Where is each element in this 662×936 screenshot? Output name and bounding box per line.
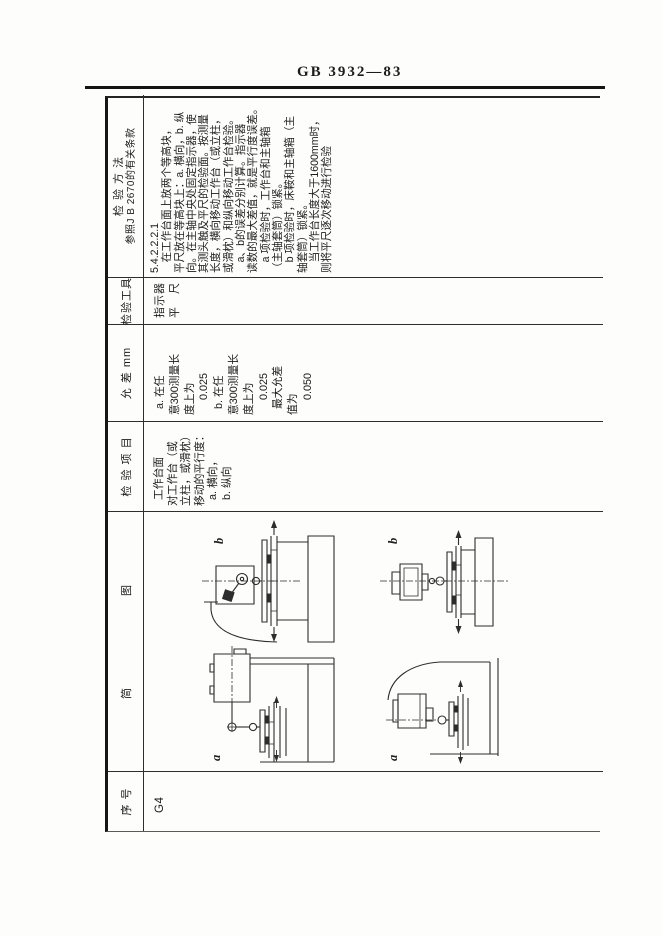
col-header-seq: 序 号 <box>108 771 144 831</box>
col-header-diagram-char1: 简 <box>118 687 134 699</box>
col-header-method-ref: 参照J B 2670的有关条款 <box>126 128 138 245</box>
diagram-label-a2: a <box>386 747 400 761</box>
col-header-tolerance: 允 差 mm <box>108 324 144 421</box>
inspection-table-grid: 序 号 简 图 检 验 项 目 允 差 mm 检验工具 检 验 方 法 参照J … <box>105 96 600 832</box>
col-header-method-title: 检 验 方 法 <box>113 156 125 216</box>
cell-seq: G4 <box>144 771 603 831</box>
scanned-standard-page: GB 3932—83 序 号 简 图 检 验 项 目 允 差 mm 检验工具 检… <box>0 0 662 936</box>
standard-number: GB 3932—83 <box>297 64 402 81</box>
col-header-diagram: 简 图 <box>108 511 144 771</box>
cell-tolerance: a. 在任 意300测量长 度上为 0.025 b. 在任 意300测量长 度上… <box>144 324 603 421</box>
inspection-table: 序 号 简 图 检 验 项 目 允 差 mm 检验工具 检 验 方 法 参照J … <box>105 96 600 832</box>
cell-method: 5.4.2.2.2.1 在工作台面上放两个等高块， 平尺放在等高块上：a. 横向… <box>144 95 603 277</box>
cell-item: 工作台面 对工作台（或 立柱，或滑枕） 移动的平行度： a. 横向， b. 纵向 <box>144 421 603 511</box>
col-header-diagram-char2: 图 <box>118 584 134 596</box>
diagram-label-b1: b <box>212 530 226 544</box>
diagram-label-b2: b <box>386 530 400 544</box>
col-header-method: 检 验 方 法 参照J B 2670的有关条款 <box>108 95 144 277</box>
cell-tools: 指示器 平 尺 <box>144 277 603 324</box>
diagram-label-a1: a <box>209 747 223 761</box>
col-header-tools: 检验工具 <box>108 277 144 324</box>
col-header-item: 检 验 项 目 <box>108 421 144 511</box>
header-rule <box>85 86 605 89</box>
